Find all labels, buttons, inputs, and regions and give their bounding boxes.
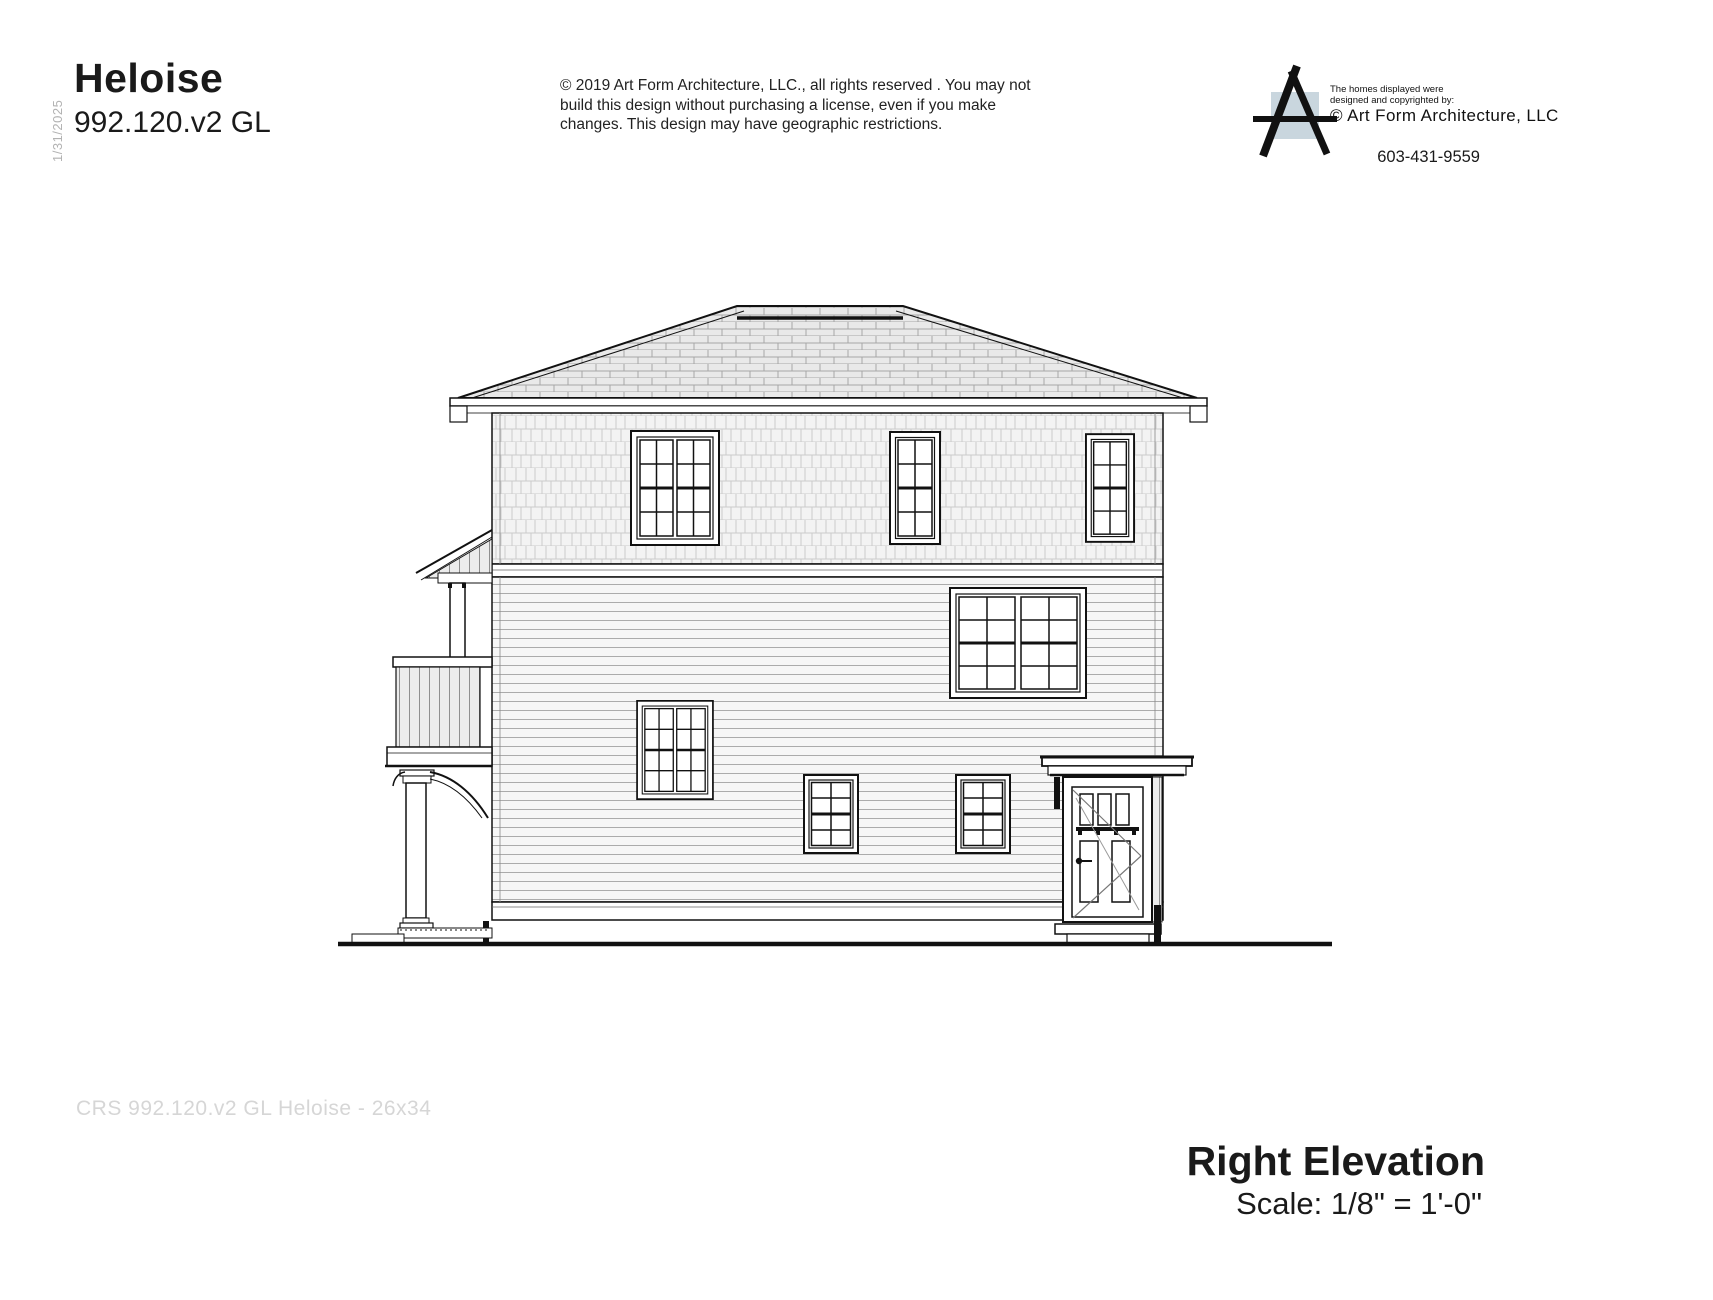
balcony-post — [450, 583, 465, 658]
floor-band — [492, 564, 1163, 577]
window-upper-left — [631, 431, 719, 545]
window-first-small-right — [956, 775, 1010, 853]
porch-column — [400, 770, 434, 928]
porch-floor — [352, 928, 492, 944]
window-first-small-left — [804, 775, 858, 853]
balcony-roof — [426, 539, 492, 578]
door-handle — [1076, 858, 1082, 864]
balcony-deck — [385, 747, 492, 766]
window-upper-middle — [890, 432, 940, 544]
hip-roof — [458, 306, 1197, 398]
balcony — [352, 530, 492, 944]
balcony-railing — [393, 657, 492, 747]
watermark-text: CRS 992.120.v2 GL Heloise - 26x34 — [76, 1097, 431, 1121]
view-scale: Scale: 1/8" = 1'-0" — [1236, 1186, 1482, 1222]
sheet: 1/31/2025 Heloise 992.120.v2 GL © 2019 A… — [0, 0, 1713, 1300]
entry-door — [1063, 777, 1152, 922]
second-floor-wall — [492, 413, 1163, 564]
window-upper-right — [1086, 434, 1134, 542]
skirt-board — [483, 902, 1163, 942]
entry — [1040, 757, 1194, 944]
window-stair-landing — [637, 701, 713, 799]
window-first-large-double — [950, 588, 1086, 698]
view-title: Right Elevation — [1187, 1138, 1485, 1185]
